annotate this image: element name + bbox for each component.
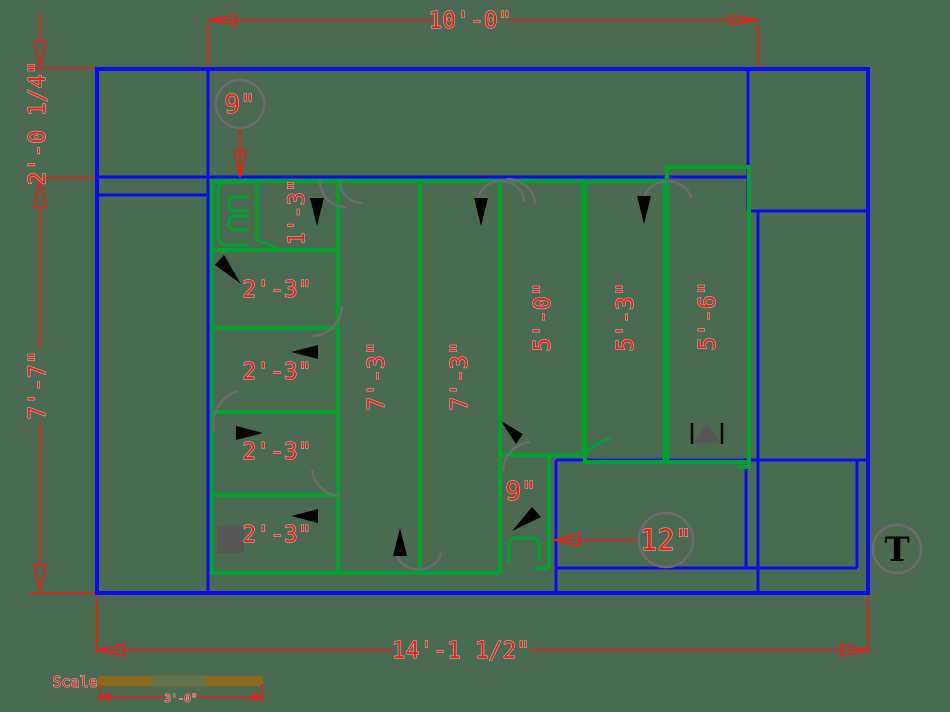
- inline-label-9in: 9": [505, 477, 536, 507]
- dim-label-top: 10'-0": [428, 8, 511, 34]
- arrow-up-left: [501, 421, 523, 444]
- thermostat-tag: T: [884, 530, 909, 570]
- door-leaf-1: [257, 240, 279, 249]
- arrow-down: [310, 198, 324, 226]
- door-arc: [340, 181, 362, 203]
- supply-triangle-symbol: [693, 424, 721, 443]
- room-label: 7'-3": [364, 341, 390, 410]
- dimension-lines: [30, 14, 868, 656]
- drain-fixture: [509, 538, 539, 564]
- door-leaf-2: [583, 438, 610, 456]
- scale-label: Scale: [52, 673, 97, 691]
- dim-label-left-overall: 7'-7": [25, 350, 51, 419]
- coil-fixture-loop-1: [229, 197, 249, 211]
- room-labels: 1'-3" 2'-3" 2'-3" 2'-3" 2'-3" 7'-3" 7'-3…: [242, 179, 721, 548]
- door-arc: [320, 181, 346, 207]
- room-label: 5'-0": [530, 282, 556, 351]
- arrow-down: [637, 196, 651, 224]
- room-label: 5'-6": [695, 281, 721, 350]
- door-arc: [312, 470, 340, 496]
- floor-box-symbol: [217, 526, 244, 553]
- scale-bar-middle-segment: [152, 676, 207, 686]
- arrow-right: [236, 426, 263, 440]
- arrow-up: [393, 528, 407, 556]
- room-label: 2'-3": [242, 522, 311, 548]
- room-label: 2'-3": [242, 439, 311, 465]
- room-label: 2'-3": [242, 277, 311, 303]
- floor-plan-canvas[interactable]: 10'-0" 2'-0 1/4" 7'-7" 14'-1 1/2" 9" 9" …: [0, 0, 950, 712]
- coil-fixture-loop-2: [229, 216, 249, 230]
- room-label: 1'-3": [285, 179, 310, 245]
- arrow-down-right: [215, 255, 241, 284]
- scale-value: 3'-0": [164, 692, 197, 705]
- arrow-down-left: [512, 507, 541, 531]
- dim-label-left-upper: 2'-0 1/4": [25, 61, 51, 186]
- floor-plan-drawing: 10'-0" 2'-0 1/4" 7'-7" 14'-1 1/2" 9" 9" …: [0, 0, 950, 712]
- callout-label-9in: 9": [224, 90, 255, 120]
- scale-bar: Scale 3'-0": [52, 673, 263, 705]
- coil-fixture-outline: [218, 182, 249, 245]
- arrow-down: [474, 198, 488, 226]
- room-label: 7'-3": [447, 341, 473, 410]
- dim-arrow-down: [34, 565, 46, 591]
- arrow-left: [291, 509, 318, 523]
- room-label: 2'-3": [242, 359, 311, 385]
- dimension-text: 10'-0" 2'-0 1/4" 7'-7" 14'-1 1/2" 9" 9" …: [25, 8, 692, 664]
- callout-label-12in: 12": [640, 523, 692, 557]
- arrow-left: [291, 345, 318, 359]
- room-label: 5'-3": [613, 282, 639, 351]
- dim-label-bottom: 14'-1 1/2": [392, 638, 530, 664]
